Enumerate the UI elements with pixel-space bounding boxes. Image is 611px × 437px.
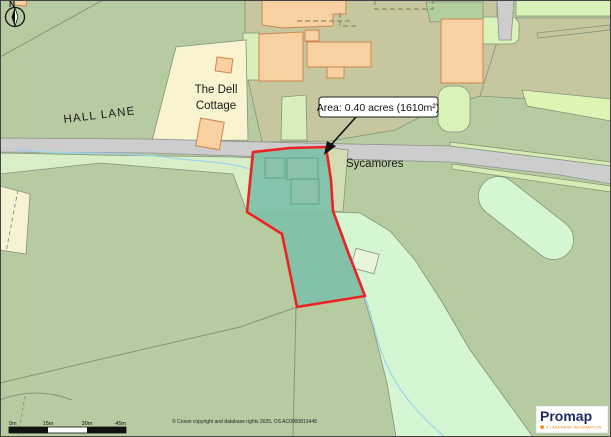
left-cream-parcel — [0, 186, 30, 254]
side-road — [497, 0, 514, 40]
building — [307, 42, 371, 67]
copyright-text: © Crown copyright and database rights 20… — [172, 418, 317, 425]
cottage-building — [196, 118, 224, 150]
cottage-label-line1: The Dell — [195, 84, 238, 96]
scale-tick: 45m — [115, 421, 126, 427]
promap-logo-mark — [541, 426, 544, 429]
building — [327, 67, 344, 78]
promap-logo-brand: Promap — [540, 408, 592, 424]
scale-tick: 15m — [43, 421, 54, 427]
scale-tick: 0m — [9, 421, 17, 427]
sycamores-label: Sycamores — [346, 158, 404, 170]
map-canvas[interactable]: Area: 0.40 acres (1610m²) HALL LANE The … — [0, 0, 611, 437]
area-annotation[interactable]: Area: 0.40 acres (1610m²) — [317, 97, 440, 117]
building — [441, 19, 483, 83]
building — [305, 30, 319, 41]
scale-tick: 30m — [82, 421, 93, 427]
cottage-outbuilding — [215, 57, 233, 73]
promap-map[interactable]: Area: 0.40 acres (1610m²) HALL LANE The … — [0, 0, 611, 437]
cottage-label-line2: Cottage — [196, 100, 236, 112]
promap-logo-tagline: A LANDMARK INFORMATION — [546, 426, 602, 430]
area-annotation-text: Area: 0.40 acres (1610m²) — [317, 102, 440, 114]
building — [259, 32, 303, 81]
building — [262, 0, 346, 28]
promap-logo: Promap A LANDMARK INFORMATION — [536, 406, 608, 433]
